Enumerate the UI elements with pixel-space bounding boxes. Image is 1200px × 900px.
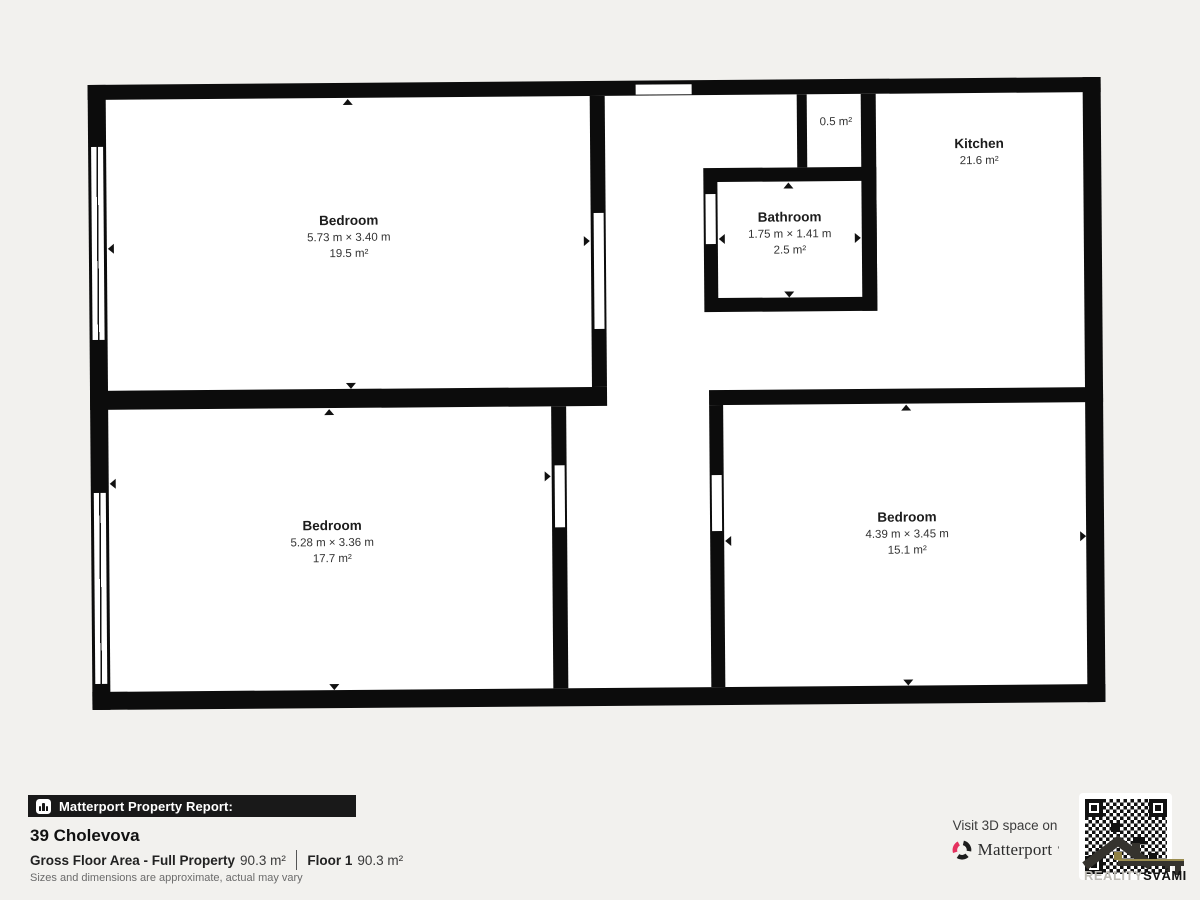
room-area: 17.7 m² — [291, 551, 375, 568]
room-area: 2.5 m² — [748, 242, 832, 259]
dim-arrow — [584, 236, 590, 246]
gross-floor-area-value: 90.3 m² — [240, 853, 286, 868]
room-area: 21.6 m² — [954, 153, 1004, 169]
dim-arrow — [343, 99, 353, 105]
door-bedroom-1 — [593, 213, 604, 329]
dim-arrow — [903, 680, 913, 686]
qr-finder-top-right — [1149, 799, 1167, 817]
room-dimensions: 5.28 m × 3.36 m — [290, 535, 374, 552]
matterport-promo: Visit 3D space on Matterport’ — [935, 818, 1075, 861]
room-label-kitchen: Kitchen 21.6 m² — [954, 135, 1004, 169]
visit-3d-text: Visit 3D space on — [935, 818, 1075, 833]
room-label-bathroom: Bathroom 1.75 m × 1.41 m 2.5 m² — [748, 208, 832, 259]
door-bedroom-3 — [712, 475, 722, 531]
room-name: Kitchen — [954, 135, 1004, 153]
dim-arrow — [784, 291, 794, 297]
matterport-report-icon — [36, 799, 51, 814]
door-entry — [636, 84, 692, 94]
wall-corridor-right — [709, 405, 725, 687]
floor-value: 90.3 m² — [357, 853, 403, 868]
matterport-logo-icon — [951, 839, 973, 861]
room-name: Bedroom — [307, 212, 391, 231]
dim-arrow — [783, 182, 793, 188]
room-label-bedroom-3: Bedroom 4.39 m × 3.45 m 15.1 m² — [865, 508, 949, 559]
room-dimensions: 1.75 m × 1.41 m — [748, 226, 832, 243]
dim-arrow — [901, 405, 911, 411]
dim-arrow — [329, 684, 339, 690]
door-bathroom — [705, 194, 715, 244]
door-bedroom-2 — [554, 465, 564, 527]
dim-arrow — [855, 233, 861, 243]
room-label-bedroom-1: Bedroom 5.73 m × 3.40 m 19.5 m² — [307, 212, 391, 263]
dim-arrow — [110, 479, 116, 489]
trademark-tick: ’ — [1057, 845, 1059, 855]
floor-plan: Bedroom 5.73 m × 3.40 m 19.5 m² Bathroom… — [0, 0, 1200, 765]
agency-name-light: REALITY — [1084, 868, 1143, 883]
dim-arrow — [346, 383, 356, 389]
realty-agency-logo: REALITYSVÁMI — [1081, 835, 1193, 883]
disclaimer-text: Sizes and dimensions are approximate, ac… — [30, 872, 303, 884]
wall-mid-horizontal — [90, 387, 607, 410]
floor-label: Floor 1 — [307, 853, 352, 868]
qr-module — [1111, 823, 1120, 832]
matterport-brand-row: Matterport’ — [935, 839, 1075, 861]
room-name: Bedroom — [865, 508, 949, 527]
wall-bedroom3-top — [709, 387, 1103, 405]
room-name: Bathroom — [748, 208, 832, 227]
dim-arrow — [1080, 531, 1086, 541]
dim-arrow — [719, 234, 725, 244]
property-address: 39 Cholevova — [30, 826, 140, 846]
divider — [296, 850, 298, 870]
floor-area-line: Gross Floor Area - Full Property 90.3 m²… — [30, 850, 403, 870]
wall-corridor-left — [551, 406, 568, 688]
dim-arrow — [108, 244, 114, 254]
room-dimensions: 4.39 m × 3.45 m — [865, 526, 949, 543]
matterport-wordmark: Matterport — [978, 840, 1053, 860]
room-dimensions: 5.73 m × 3.40 m — [307, 230, 391, 247]
room-area: 19.5 m² — [307, 246, 391, 263]
report-header-title: Matterport Property Report: — [59, 799, 233, 814]
dim-arrow — [545, 471, 551, 481]
gross-floor-area-label: Gross Floor Area - Full Property — [30, 853, 235, 868]
room-name: Bedroom — [290, 517, 374, 536]
dim-arrow — [725, 536, 731, 546]
window-bedroom-2 — [94, 493, 107, 684]
agency-name-bold: SVÁMI — [1143, 868, 1187, 883]
qr-finder-top-left — [1085, 799, 1103, 817]
room-label-closet: 0.5 m² — [820, 114, 853, 130]
report-header-bar: Matterport Property Report: — [28, 795, 356, 817]
dim-arrow — [324, 409, 334, 415]
wall-closet-left — [797, 94, 808, 167]
room-label-bedroom-2: Bedroom 5.28 m × 3.36 m 17.7 m² — [290, 517, 374, 568]
room-area: 15.1 m² — [865, 542, 949, 559]
room-area: 0.5 m² — [820, 114, 853, 130]
window-bedroom-1 — [91, 147, 105, 340]
agency-name: REALITYSVÁMI — [1084, 868, 1187, 883]
